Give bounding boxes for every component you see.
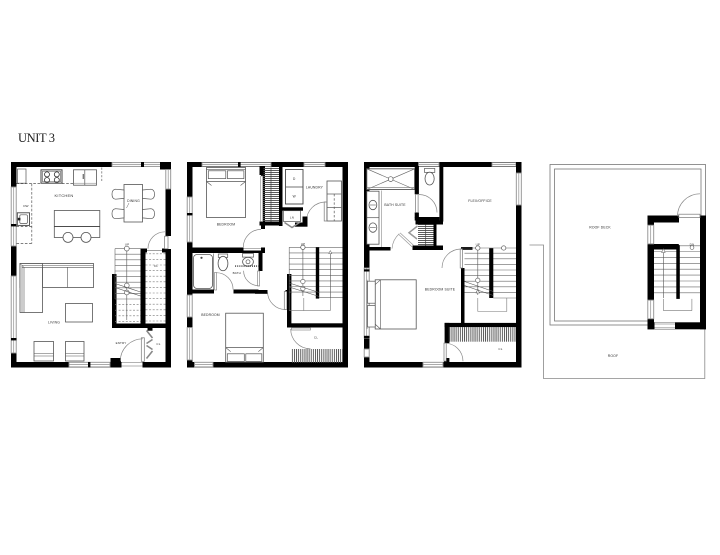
svg-text:BATH: BATH — [233, 271, 241, 275]
svg-text:BEDROOM SUITE: BEDROOM SUITE — [425, 287, 456, 291]
svg-text:FLEX/OFFICE: FLEX/OFFICE — [468, 199, 492, 203]
svg-text:LN: LN — [290, 215, 294, 219]
svg-text:W: W — [293, 195, 296, 199]
svg-text:ROOF: ROOF — [608, 354, 618, 358]
svg-text:DW: DW — [23, 204, 28, 208]
svg-text:BEDROOM: BEDROOM — [201, 313, 220, 317]
svg-text:DINING: DINING — [127, 199, 140, 203]
svg-text:ROOF DECK: ROOF DECK — [589, 226, 611, 230]
svg-text:BATH SUITE: BATH SUITE — [384, 203, 406, 207]
svg-text:CL: CL — [314, 336, 318, 340]
svg-text:ENTRY: ENTRY — [116, 341, 127, 345]
svg-text:LIVING: LIVING — [48, 321, 60, 325]
svg-text:LAUNDRY: LAUNDRY — [306, 186, 324, 190]
svg-text:BEDROOM: BEDROOM — [217, 222, 236, 226]
svg-text:UNIT 3: UNIT 3 — [18, 131, 55, 145]
svg-text:CL: CL — [156, 342, 160, 346]
svg-text:KITCHEN: KITCHEN — [55, 193, 74, 198]
svg-text:CL: CL — [498, 347, 502, 351]
svg-text:CL: CL — [154, 264, 158, 268]
